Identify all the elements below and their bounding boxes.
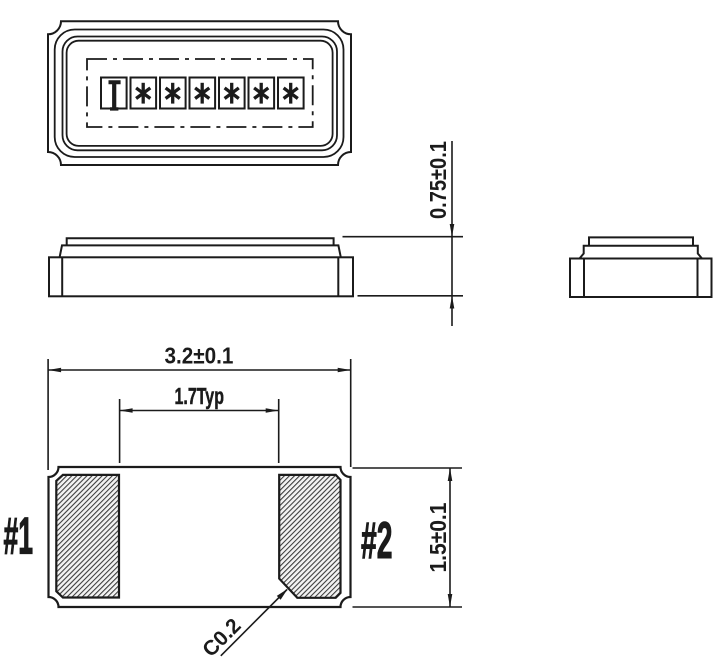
svg-text:#1: #1	[4, 507, 33, 565]
svg-text:0.75±0.1: 0.75±0.1	[425, 141, 452, 219]
svg-text:1.5±0.1: 1.5±0.1	[425, 503, 451, 573]
svg-text:#2: #2	[361, 511, 392, 569]
svg-text:1.7Typ: 1.7Typ	[175, 384, 224, 410]
svg-text:3.2±0.1: 3.2±0.1	[165, 342, 234, 368]
